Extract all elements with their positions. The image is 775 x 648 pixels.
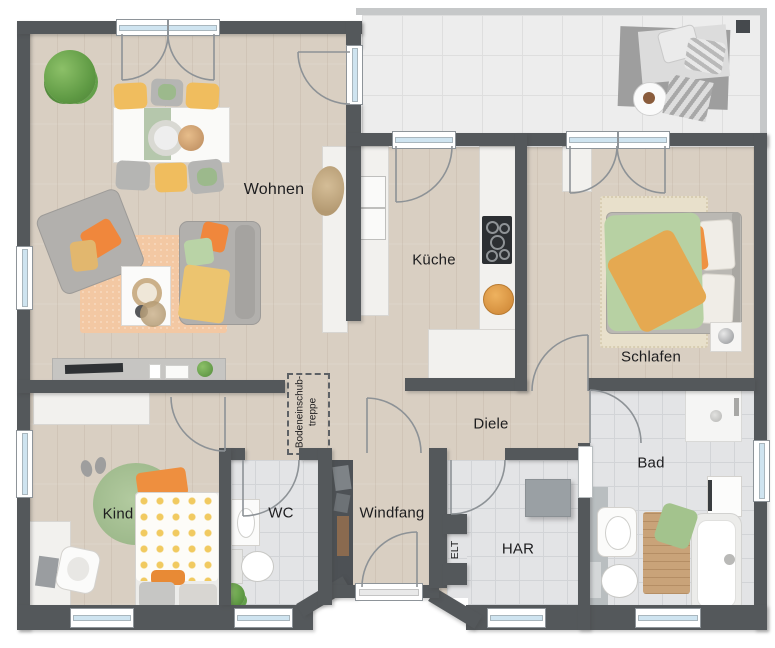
window [234,608,293,628]
chair-cushion [158,84,177,101]
coat-item [332,465,351,491]
room-label-wohnen: Wohnen [244,181,305,199]
kids-bed [135,468,221,613]
glass [22,249,28,307]
room-label-elt: ELT [449,541,461,559]
lamp [718,328,734,344]
washing-machine [707,476,742,517]
window [635,608,701,628]
wall [452,133,568,146]
room-label-windfang: Windfang [360,505,425,522]
terrace-drain [736,20,750,33]
washer-door [708,480,712,511]
pillow-green [183,237,214,267]
tv [65,363,123,374]
terrace-door [346,45,363,105]
window [70,608,134,628]
mullion [617,132,619,148]
coat-item [334,493,351,513]
dining-chair [115,160,150,191]
shower-drain [710,410,722,422]
dining-chair [187,158,224,194]
potted-plant [44,50,96,104]
burner [490,235,505,250]
mullion [167,20,169,35]
dining-chair [151,78,184,106]
terrace-double-door [566,131,670,149]
room-label-diele: Diele [473,416,508,433]
wall [299,448,318,460]
glass [352,48,358,102]
room-label-schlafen: Schlafen [621,349,681,366]
sofa [179,221,259,323]
dining-chair [113,82,147,110]
shower [685,389,742,442]
attic-hatch-label-line2: treppe [308,398,319,426]
floorplan: Wohnen Küche Schlafen Diele Kind WC Wind… [0,0,775,648]
room-label-har: HAR [502,541,534,558]
wall [443,563,467,585]
french-door-window [116,19,220,36]
decor-books [165,365,189,379]
front-door [355,583,423,601]
room-label-bad: Bad [637,455,664,472]
fruit-bowl [483,284,514,315]
terrace-edge [760,8,767,140]
glass [490,615,543,621]
glass [759,443,765,499]
kitchen-cabinet [428,329,517,380]
room-label-kueche: Küche [412,252,456,269]
wardrobe [33,392,150,425]
wall [515,133,527,391]
window [16,430,33,498]
shower-fitting [734,398,739,416]
window [753,440,770,502]
burner [499,223,510,234]
glass [237,615,290,621]
sofa-back [235,225,255,319]
radiator [578,446,593,498]
basin [237,508,255,538]
toilet-tank [589,562,601,598]
wall [330,585,357,598]
burner [486,250,498,262]
nightstand [710,322,742,352]
cooktop [482,216,512,264]
bathtub [691,513,742,615]
toilet [241,551,274,582]
tub-faucet [724,554,735,565]
chair-cushion [196,167,218,187]
wall [346,133,394,146]
door-threshold [359,589,419,596]
room-label-wc: WC [268,505,293,522]
decor-books [149,364,161,379]
attic-hatch-label-line1: Bodeneinschub- [295,376,306,448]
fruit-bowl [178,125,204,151]
basin [605,516,631,550]
window [16,246,33,310]
burner [486,221,499,234]
room-label-kind: Kind [103,506,134,523]
wall [405,378,527,391]
sink [231,499,260,546]
window [487,608,546,628]
plant-small [197,361,213,377]
wardrobe [562,146,592,192]
kitchen-appliance [359,208,386,240]
wall [666,133,767,146]
cup [643,92,655,104]
duvet-dotted [136,493,218,581]
pillow-tan [69,239,98,272]
terrace-edge [356,8,767,15]
wall [754,133,767,630]
coffee-table [121,266,171,326]
wall [17,21,30,630]
sink [597,507,637,557]
double-bed [606,212,740,332]
glass [638,615,698,621]
toilet [601,564,638,598]
utility-unit [525,479,571,517]
dining-chair [185,82,219,110]
dining-chair [155,162,188,192]
coat-item [337,516,349,556]
wall [318,448,332,605]
wall [17,380,285,393]
kitchen-appliance [359,176,386,208]
glass [73,615,131,621]
wall [346,21,361,47]
wall [443,514,467,534]
dried-grass [140,301,166,327]
chair-seat [65,555,92,583]
burner [499,249,510,260]
blanket-yellow [177,264,230,324]
wall [505,448,588,460]
glass [395,137,453,143]
terrace-pillow-striped [684,37,727,75]
coat-wardrobe [332,460,353,590]
wall [588,378,755,391]
dining-table [113,107,230,163]
terrace-door [392,131,456,149]
glass [22,433,28,495]
wall [219,448,231,605]
